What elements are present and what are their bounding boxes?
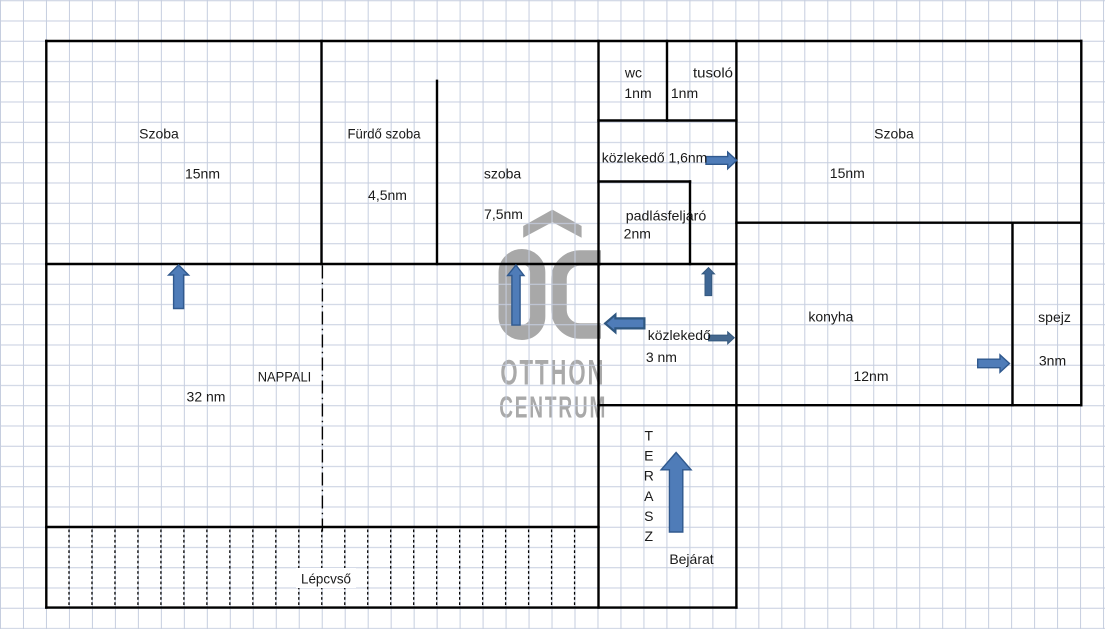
svg-text:Fürdő szoba: Fürdő szoba (348, 126, 421, 142)
svg-text:2nm: 2nm (624, 226, 651, 242)
svg-text:4,5nm: 4,5nm (368, 187, 407, 203)
svg-text:közlekedő: közlekedő (648, 327, 711, 343)
svg-text:32 nm: 32 nm (187, 389, 226, 405)
svg-text:T: T (645, 428, 654, 444)
svg-text:NAPPALI: NAPPALI (258, 369, 312, 385)
svg-text:wc: wc (624, 65, 642, 81)
svg-text:Szoba: Szoba (874, 126, 914, 142)
svg-text:spejz: spejz (1038, 309, 1071, 325)
svg-text:S: S (644, 508, 653, 524)
svg-text:15nm: 15nm (185, 166, 220, 182)
svg-text:Bejárat: Bejárat (669, 551, 713, 567)
svg-text:3 nm: 3 nm (646, 349, 677, 365)
svg-text:15nm: 15nm (830, 165, 865, 181)
svg-text:12nm: 12nm (853, 368, 888, 384)
svg-text:7,5nm: 7,5nm (484, 206, 523, 222)
svg-text:R: R (644, 468, 654, 484)
svg-text:közlekedő 1,6nm: közlekedő 1,6nm (602, 149, 708, 165)
svg-text:E: E (644, 448, 653, 464)
svg-text:1nm: 1nm (624, 85, 651, 101)
svg-text:Lépcvső: Lépcvső (301, 570, 351, 586)
svg-text:szoba: szoba (484, 166, 522, 182)
svg-text:Z: Z (645, 528, 654, 544)
svg-text:tusoló: tusoló (693, 65, 733, 81)
svg-text:1nm: 1nm (671, 85, 698, 101)
svg-text:konyha: konyha (808, 309, 853, 325)
svg-text:A: A (644, 488, 654, 504)
svg-text:Szoba: Szoba (139, 126, 179, 142)
svg-text:3nm: 3nm (1039, 352, 1066, 368)
svg-text:padlásfeljáró: padlásfeljáró (626, 207, 707, 223)
